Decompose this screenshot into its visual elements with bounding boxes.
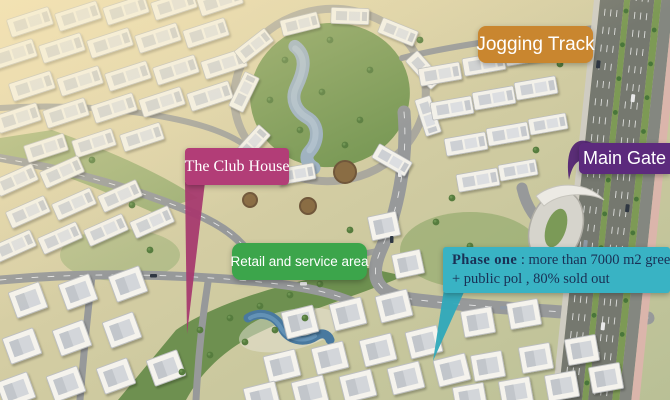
main-gate-label: Main Gate (579, 143, 670, 174)
jogging-track-text: Jogging Track (476, 34, 594, 56)
club-house-text: The Club House (185, 158, 290, 176)
jogging-track-label: Jogging Track (478, 26, 593, 63)
aerial-masterplan-view: Jogging Track The Club House Retail and … (0, 0, 670, 400)
retail-area-text: Retail and service area (230, 254, 368, 269)
phase-one-line1: : more than 7000 m2 green a (517, 252, 670, 268)
retail-area-label: Retail and service area (232, 243, 367, 280)
phase-one-line2: + public pol , 80% sold out (452, 270, 670, 289)
main-gate-text: Main Gate (583, 148, 666, 169)
phase-one-title: Phase one (452, 252, 517, 268)
phase-one-label: Phase one : more than 7000 m2 green a + … (443, 247, 670, 293)
phase-one-text: Phase one : more than 7000 m2 green a + … (443, 247, 670, 293)
club-house-label: The Club House (185, 148, 289, 185)
